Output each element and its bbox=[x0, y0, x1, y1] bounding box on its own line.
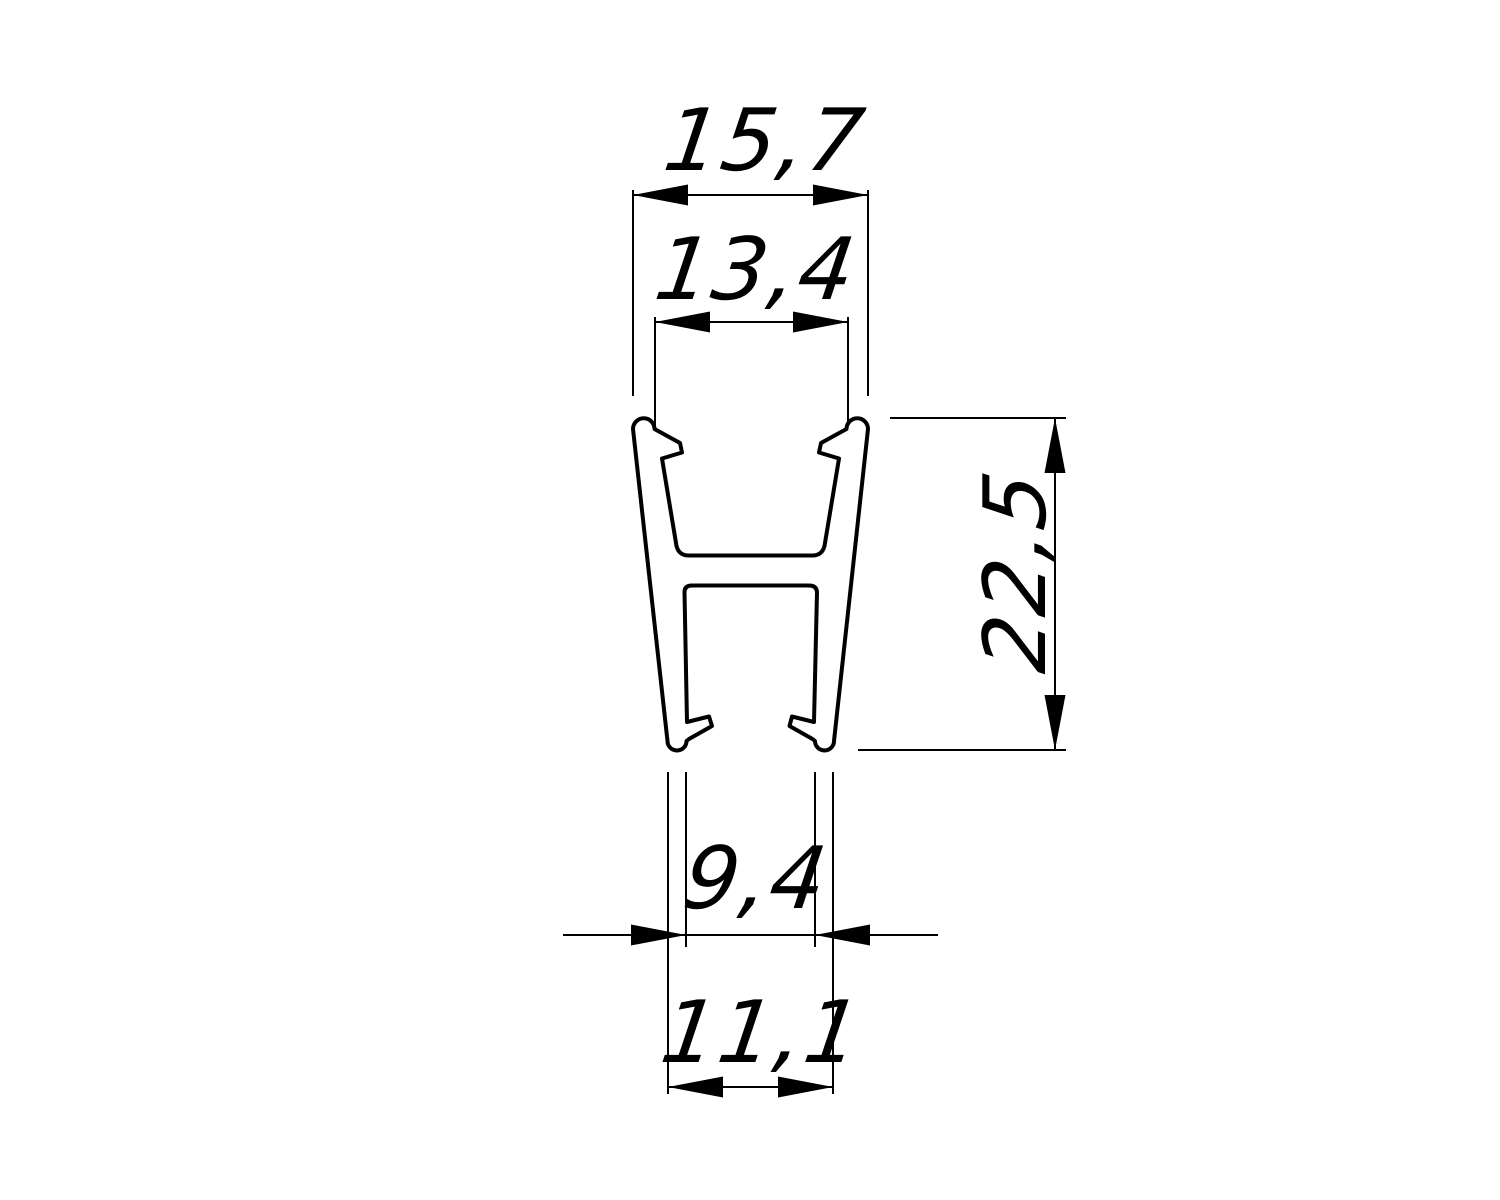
dim-label-bottom-outer-width: 11,1 bbox=[655, 983, 868, 1083]
drawing-canvas: 15,7 13,4 22,5 9,4 11,1 bbox=[0, 0, 1500, 1200]
arrow-height-bottom bbox=[1045, 695, 1066, 750]
dim-label-overall-height: 22,5 bbox=[966, 464, 1066, 677]
dim-label-top-outer-width: 15,7 bbox=[658, 91, 871, 191]
profile-outline bbox=[633, 418, 868, 750]
arrow-bottom-inner-right bbox=[815, 925, 870, 946]
dim-label-top-inner-width: 13,4 bbox=[649, 220, 862, 320]
arrow-height-top bbox=[1045, 418, 1066, 473]
technical-drawing: 15,7 13,4 22,5 9,4 11,1 bbox=[0, 0, 1500, 1200]
dim-label-bottom-inner-width: 9,4 bbox=[678, 829, 835, 929]
